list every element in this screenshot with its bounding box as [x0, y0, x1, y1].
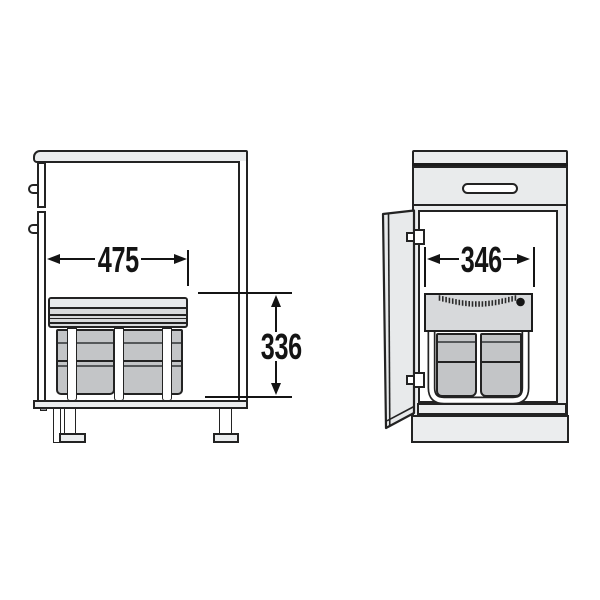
diagram-canvas: 475 336: [0, 0, 600, 600]
lid-vent-slots-icon: [426, 295, 530, 329]
dim-depth-tick: [187, 250, 189, 286]
lid-top-slab: [50, 299, 186, 309]
dim-width-line-left: [436, 258, 459, 260]
dim-height-arrow-down-icon: [271, 383, 281, 395]
hinge-top-plate: [413, 229, 425, 245]
frame-rail-rear: [162, 328, 172, 401]
dim-width-tick-left: [424, 247, 426, 287]
cabinet-bottom-shelf: [417, 403, 567, 415]
dim-height-ext-bottom: [205, 396, 292, 398]
dim-depth-label: 475: [95, 244, 141, 275]
lid-rail-line: [50, 318, 186, 320]
dim-width-label: 346: [459, 244, 503, 275]
bin-rim-line: [122, 342, 181, 344]
dim-height-line-bottom: [275, 361, 277, 385]
bin-lid-carrier: [48, 297, 188, 328]
dim-height-label: 336: [259, 332, 303, 361]
hinge-bottom-plate: [413, 372, 425, 388]
dim-depth-line-right: [141, 258, 178, 260]
bin-carrier-frame: [420, 325, 535, 410]
handle-knob-top: [28, 184, 39, 194]
dim-width-tick-right: [533, 247, 535, 287]
side-view-cabinet: 475 336: [0, 0, 320, 600]
plinth: [411, 415, 569, 443]
drawer-handle: [462, 183, 518, 194]
dim-depth-line-left: [56, 258, 95, 260]
bin-band-line: [122, 360, 181, 362]
rear-foot: [213, 433, 239, 443]
front-view-cabinet: 346: [320, 0, 600, 600]
front-leg: [64, 408, 76, 435]
frame-rail-middle: [114, 328, 124, 401]
dim-depth-arrow-right-icon: [174, 254, 187, 264]
waste-bin-right: [120, 329, 183, 395]
frame-rail-front: [67, 328, 77, 401]
bin-band-line: [122, 365, 181, 367]
lid-rail-line: [50, 322, 186, 324]
door-front-edge: [37, 211, 46, 403]
rear-leg: [219, 408, 232, 435]
bin-lid: [424, 293, 533, 332]
cabinet-back-wall: [238, 161, 248, 401]
lid-button-dot-icon: [516, 298, 525, 307]
waste-bin-left: [56, 329, 115, 395]
countertop: [33, 150, 248, 163]
dim-height-ext-top: [198, 292, 292, 294]
handle-knob-bottom: [28, 224, 39, 234]
dim-width-arrow-right-icon: [517, 254, 530, 264]
front-foot: [59, 433, 86, 443]
lid-rail-line: [50, 314, 186, 316]
